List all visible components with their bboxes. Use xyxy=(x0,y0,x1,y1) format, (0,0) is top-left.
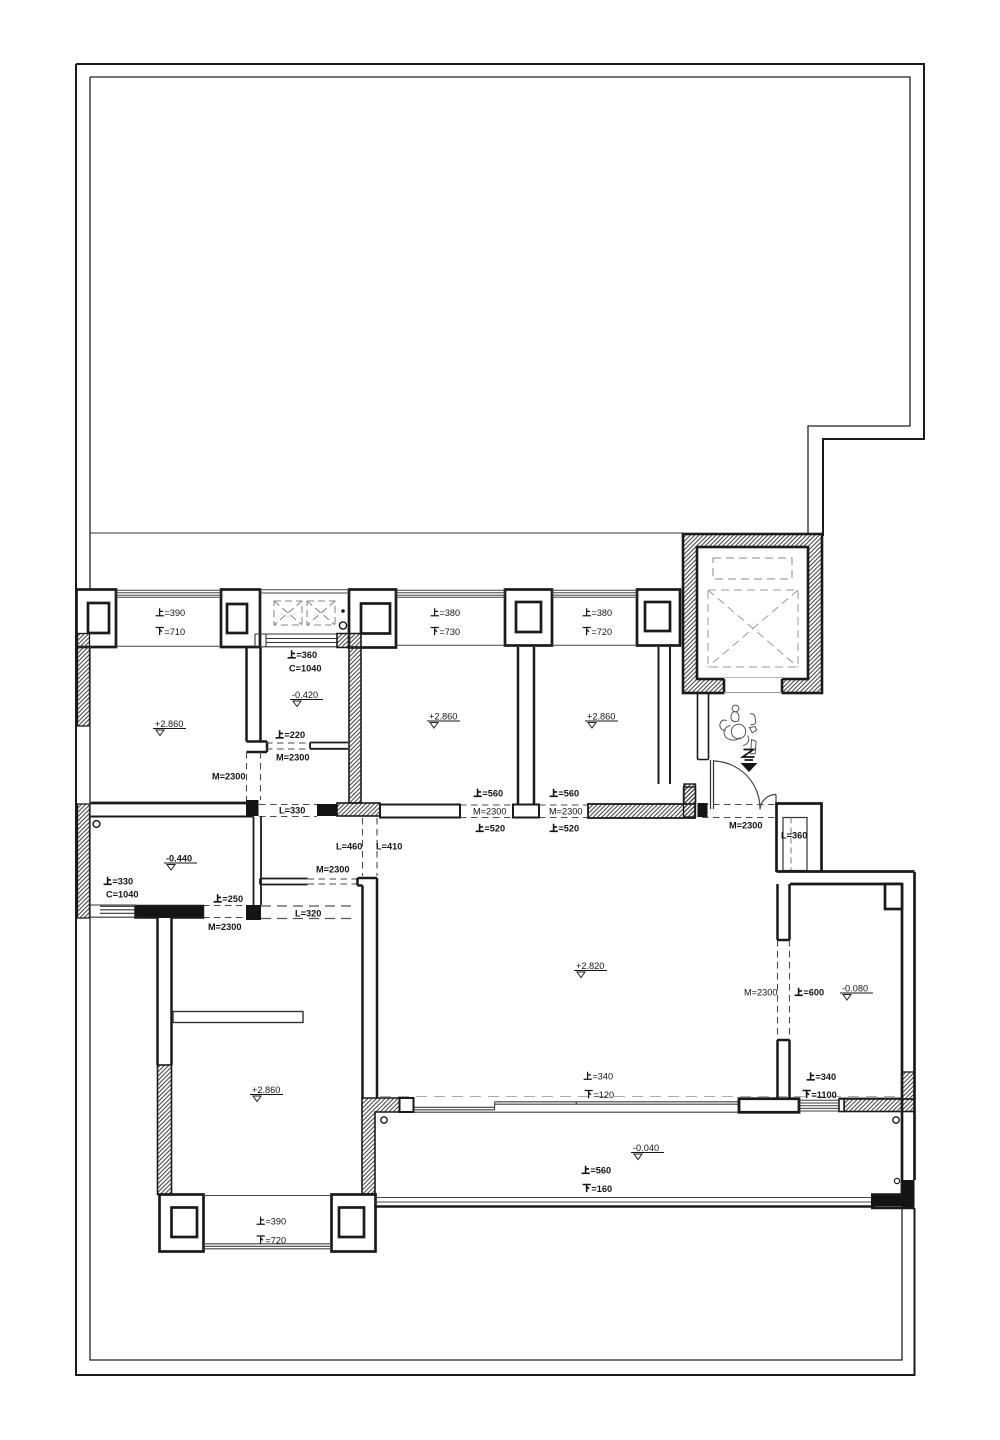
svg-text:=380: =380 xyxy=(439,608,460,618)
svg-text:=250: =250 xyxy=(222,894,243,904)
svg-text:=390: =390 xyxy=(164,608,185,618)
svg-text:M=2300: M=2300 xyxy=(473,807,506,817)
svg-text:=720: =720 xyxy=(591,627,612,637)
svg-text:+2.860: +2.860 xyxy=(252,1085,280,1095)
svg-text:=160: =160 xyxy=(591,1184,612,1194)
svg-text:-0.080: -0.080 xyxy=(842,984,868,994)
svg-text:C=1040: C=1040 xyxy=(289,664,321,674)
svg-text:=120: =120 xyxy=(593,1090,614,1100)
svg-text:+2.860: +2.860 xyxy=(587,712,615,722)
svg-text:M=2300: M=2300 xyxy=(316,865,349,875)
svg-text:=330: =330 xyxy=(112,876,133,886)
svg-text:-0.040: -0.040 xyxy=(633,1143,659,1153)
svg-text:M=2300: M=2300 xyxy=(208,922,241,932)
svg-text:M=2300: M=2300 xyxy=(549,807,582,817)
svg-text:=520: =520 xyxy=(558,823,579,833)
svg-text:L=320: L=320 xyxy=(295,909,321,919)
svg-text:=560: =560 xyxy=(482,788,503,798)
svg-text:L=330: L=330 xyxy=(279,806,305,816)
svg-text:L=360: L=360 xyxy=(781,831,807,841)
svg-text:M=2300: M=2300 xyxy=(212,772,245,782)
svg-text:=710: =710 xyxy=(164,627,185,637)
svg-text:=720: =720 xyxy=(265,1235,286,1245)
svg-text:=340: =340 xyxy=(815,1072,836,1082)
svg-text:=360: =360 xyxy=(296,650,317,660)
svg-text:=220: =220 xyxy=(284,730,305,740)
svg-text:M=2300: M=2300 xyxy=(744,988,777,998)
svg-text:+2.820: +2.820 xyxy=(576,961,604,971)
svg-text:=730: =730 xyxy=(439,627,460,637)
svg-text:=1100: =1100 xyxy=(811,1090,836,1100)
svg-text:=560: =560 xyxy=(590,1165,611,1175)
svg-text:=380: =380 xyxy=(591,608,612,618)
svg-text:+2.860: +2.860 xyxy=(155,719,183,729)
svg-text:=390: =390 xyxy=(265,1216,286,1226)
svg-text:=560: =560 xyxy=(558,788,579,798)
svg-text:=340: =340 xyxy=(592,1071,613,1081)
svg-text:=600: =600 xyxy=(803,987,824,997)
svg-text:=520: =520 xyxy=(484,823,505,833)
svg-text:L=460: L=460 xyxy=(336,842,362,852)
svg-text:L=410: L=410 xyxy=(376,842,402,852)
svg-text:M=2300: M=2300 xyxy=(729,821,762,831)
svg-text:+2.860: +2.860 xyxy=(429,712,457,722)
svg-text:M=2300: M=2300 xyxy=(276,753,309,763)
svg-text:-0.440: -0.440 xyxy=(166,854,192,864)
svg-text:C=1040: C=1040 xyxy=(106,890,138,900)
svg-text:-0.420: -0.420 xyxy=(292,690,318,700)
